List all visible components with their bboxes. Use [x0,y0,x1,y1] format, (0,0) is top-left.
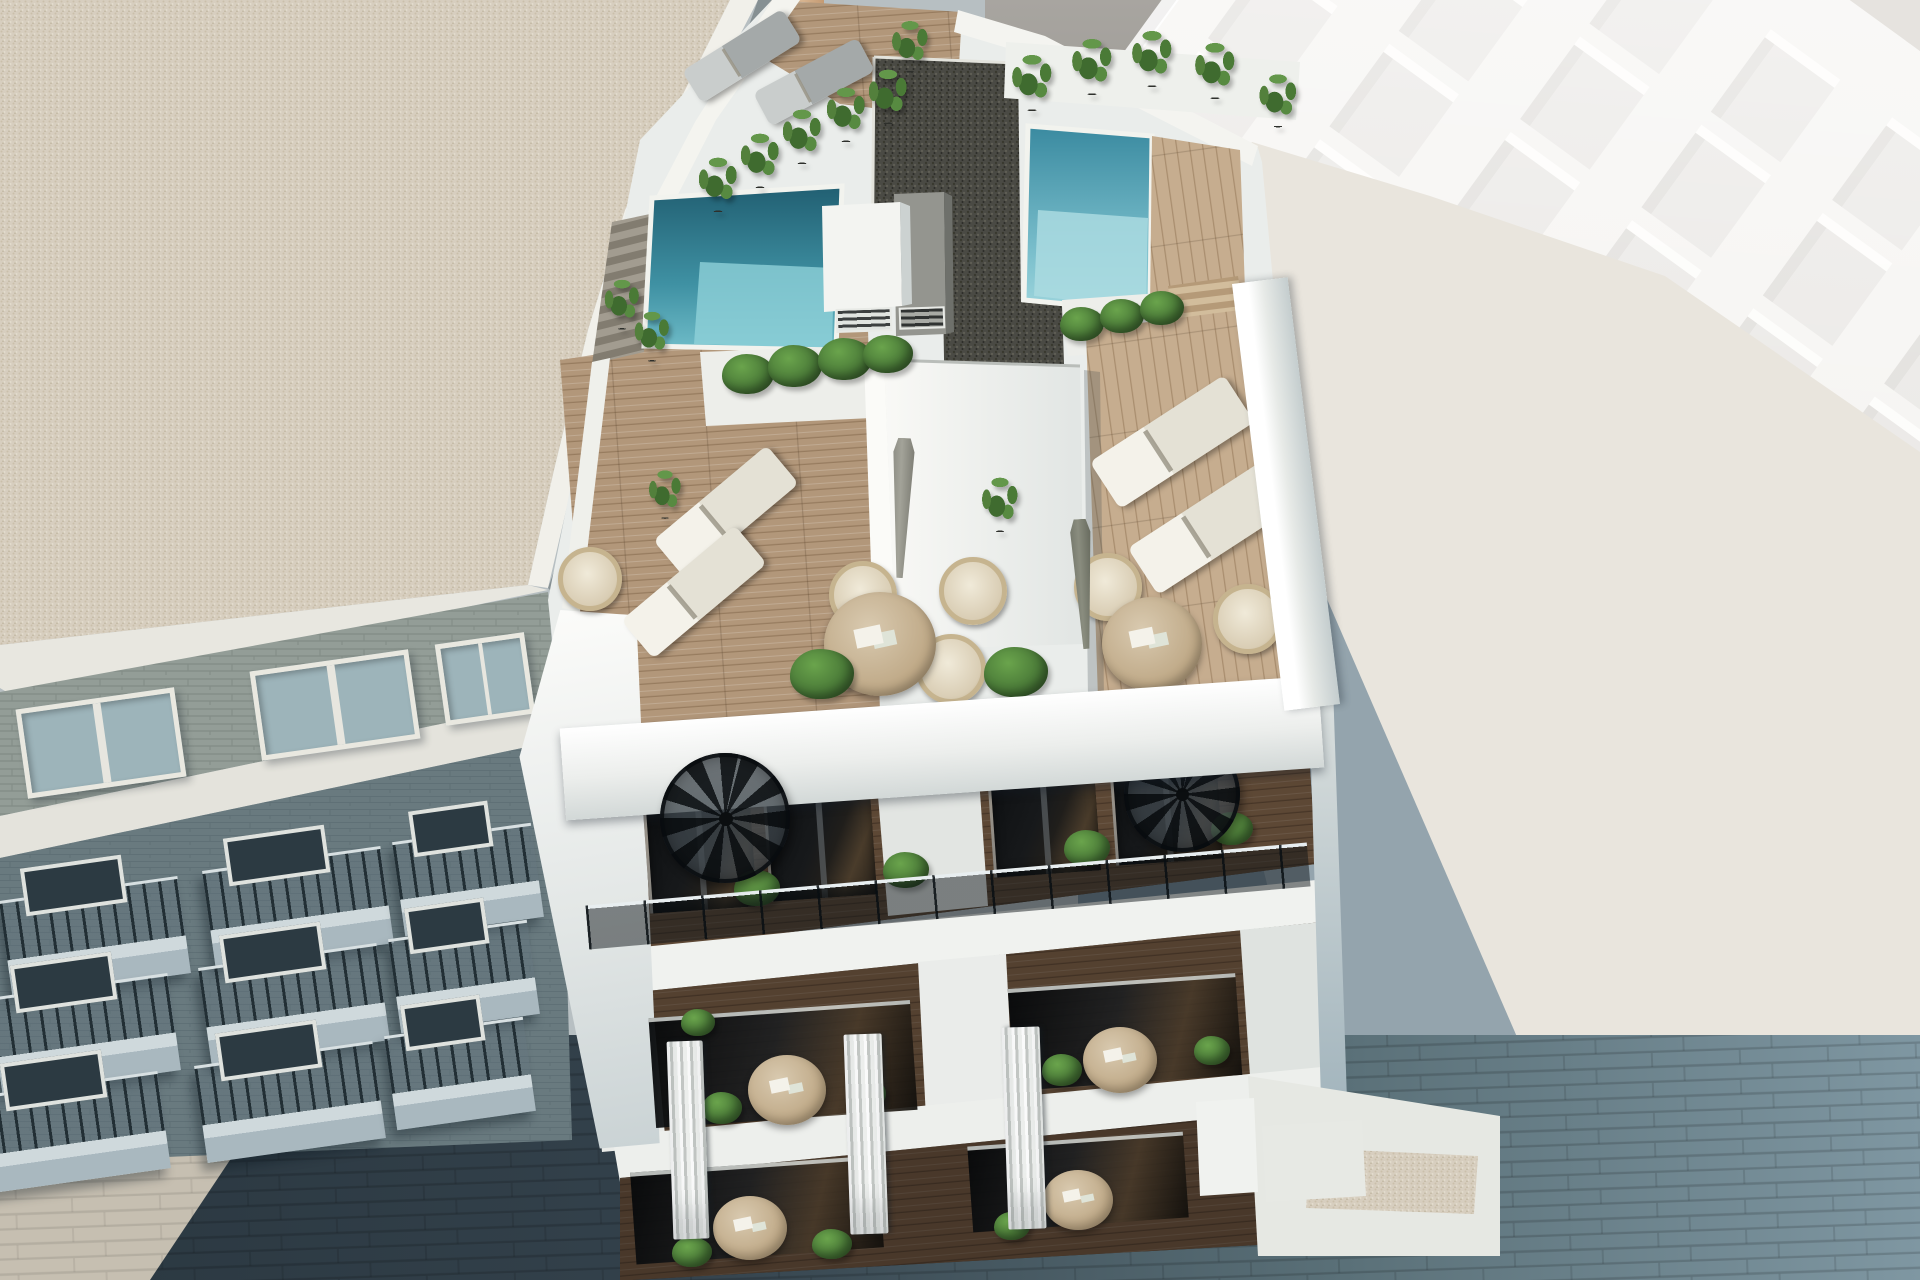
wedge-sprite [518,610,664,1154]
bush-sprite [722,354,774,394]
bush-sprite [681,1009,715,1036]
winL-sprite [435,632,536,726]
pillar-sprite [1001,1026,1046,1229]
vent-sprite [899,306,946,330]
plant-sprite [1121,20,1183,92]
balcony-sprite [194,1040,386,1162]
plant-sprite [882,11,938,77]
plant-sprite [1001,44,1063,116]
winL-sprite [250,649,421,760]
table-sprite [1083,1027,1157,1093]
bush-sprite [1060,307,1104,341]
bush-sprite [1042,1054,1082,1086]
architectural-render [0,0,1920,1280]
plant-sprite [625,302,679,366]
plant-sprite [1061,28,1123,100]
table-sprite [1043,1170,1113,1230]
plant-sprite [1249,64,1307,132]
balcony-sprite [384,1017,536,1131]
plant-sprite [640,461,690,523]
table-sprite [748,1055,826,1125]
chair-sprite [939,557,1007,625]
table-sprite [1102,597,1202,691]
bush-sprite [863,335,913,373]
parasol-sprite [878,437,927,578]
bush-sprite [1140,291,1184,325]
plant-sprite [972,467,1028,537]
bush-sprite [1194,1036,1230,1065]
bush-sprite [984,647,1048,697]
bush-sprite [702,1092,742,1124]
pillar-sprite [844,1033,889,1234]
bush-sprite [812,1229,852,1259]
chair-sprite [558,547,622,611]
balcony-sprite [0,1070,171,1192]
vent-sprite [836,307,893,333]
bush-sprite [790,649,854,699]
scene-objects [0,0,1920,1280]
spiral-sprite [660,753,790,883]
bush-sprite [1100,299,1144,333]
table-sprite [713,1196,787,1260]
winL-sprite [16,687,187,798]
pillar-sprite [667,1040,710,1239]
bush-sprite [672,1237,712,1267]
bush-sprite [768,345,822,387]
plant-sprite [1184,32,1246,104]
